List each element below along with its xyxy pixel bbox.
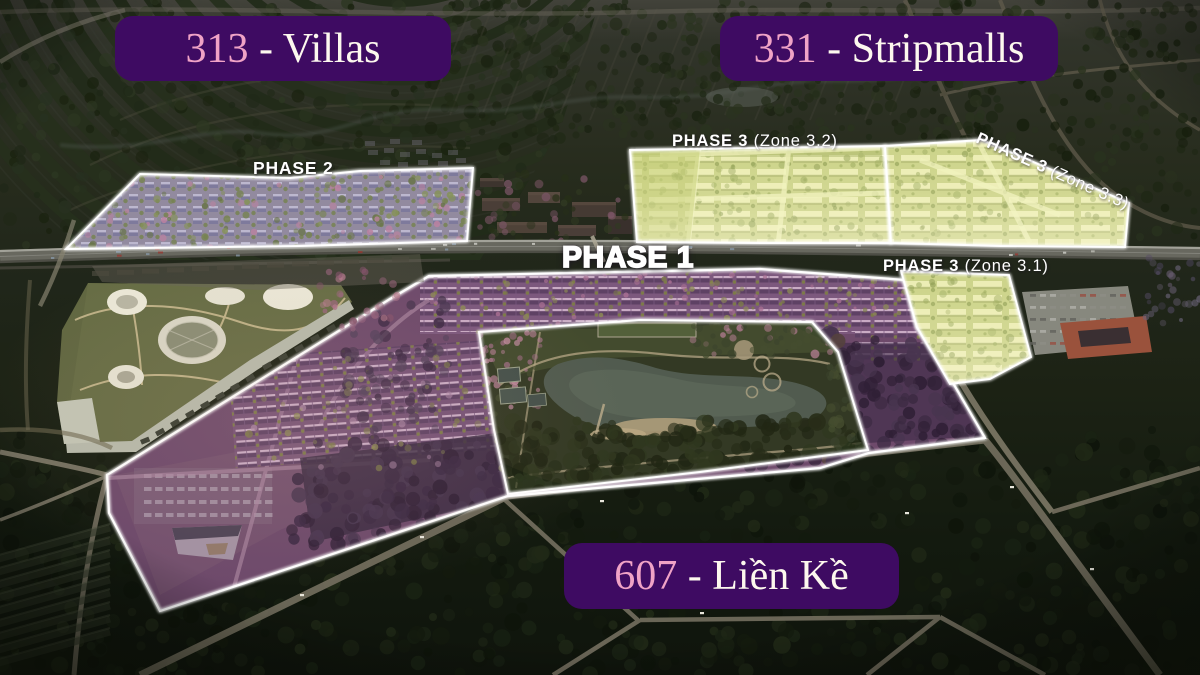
svg-text:PHASE 3 (Zone 3.2): PHASE 3 (Zone 3.2) [672,132,838,150]
svg-text:PHASE 3 (Zone 3.1): PHASE 3 (Zone 3.1) [883,257,1049,275]
svg-text:PHASE 2: PHASE 2 [253,158,334,178]
